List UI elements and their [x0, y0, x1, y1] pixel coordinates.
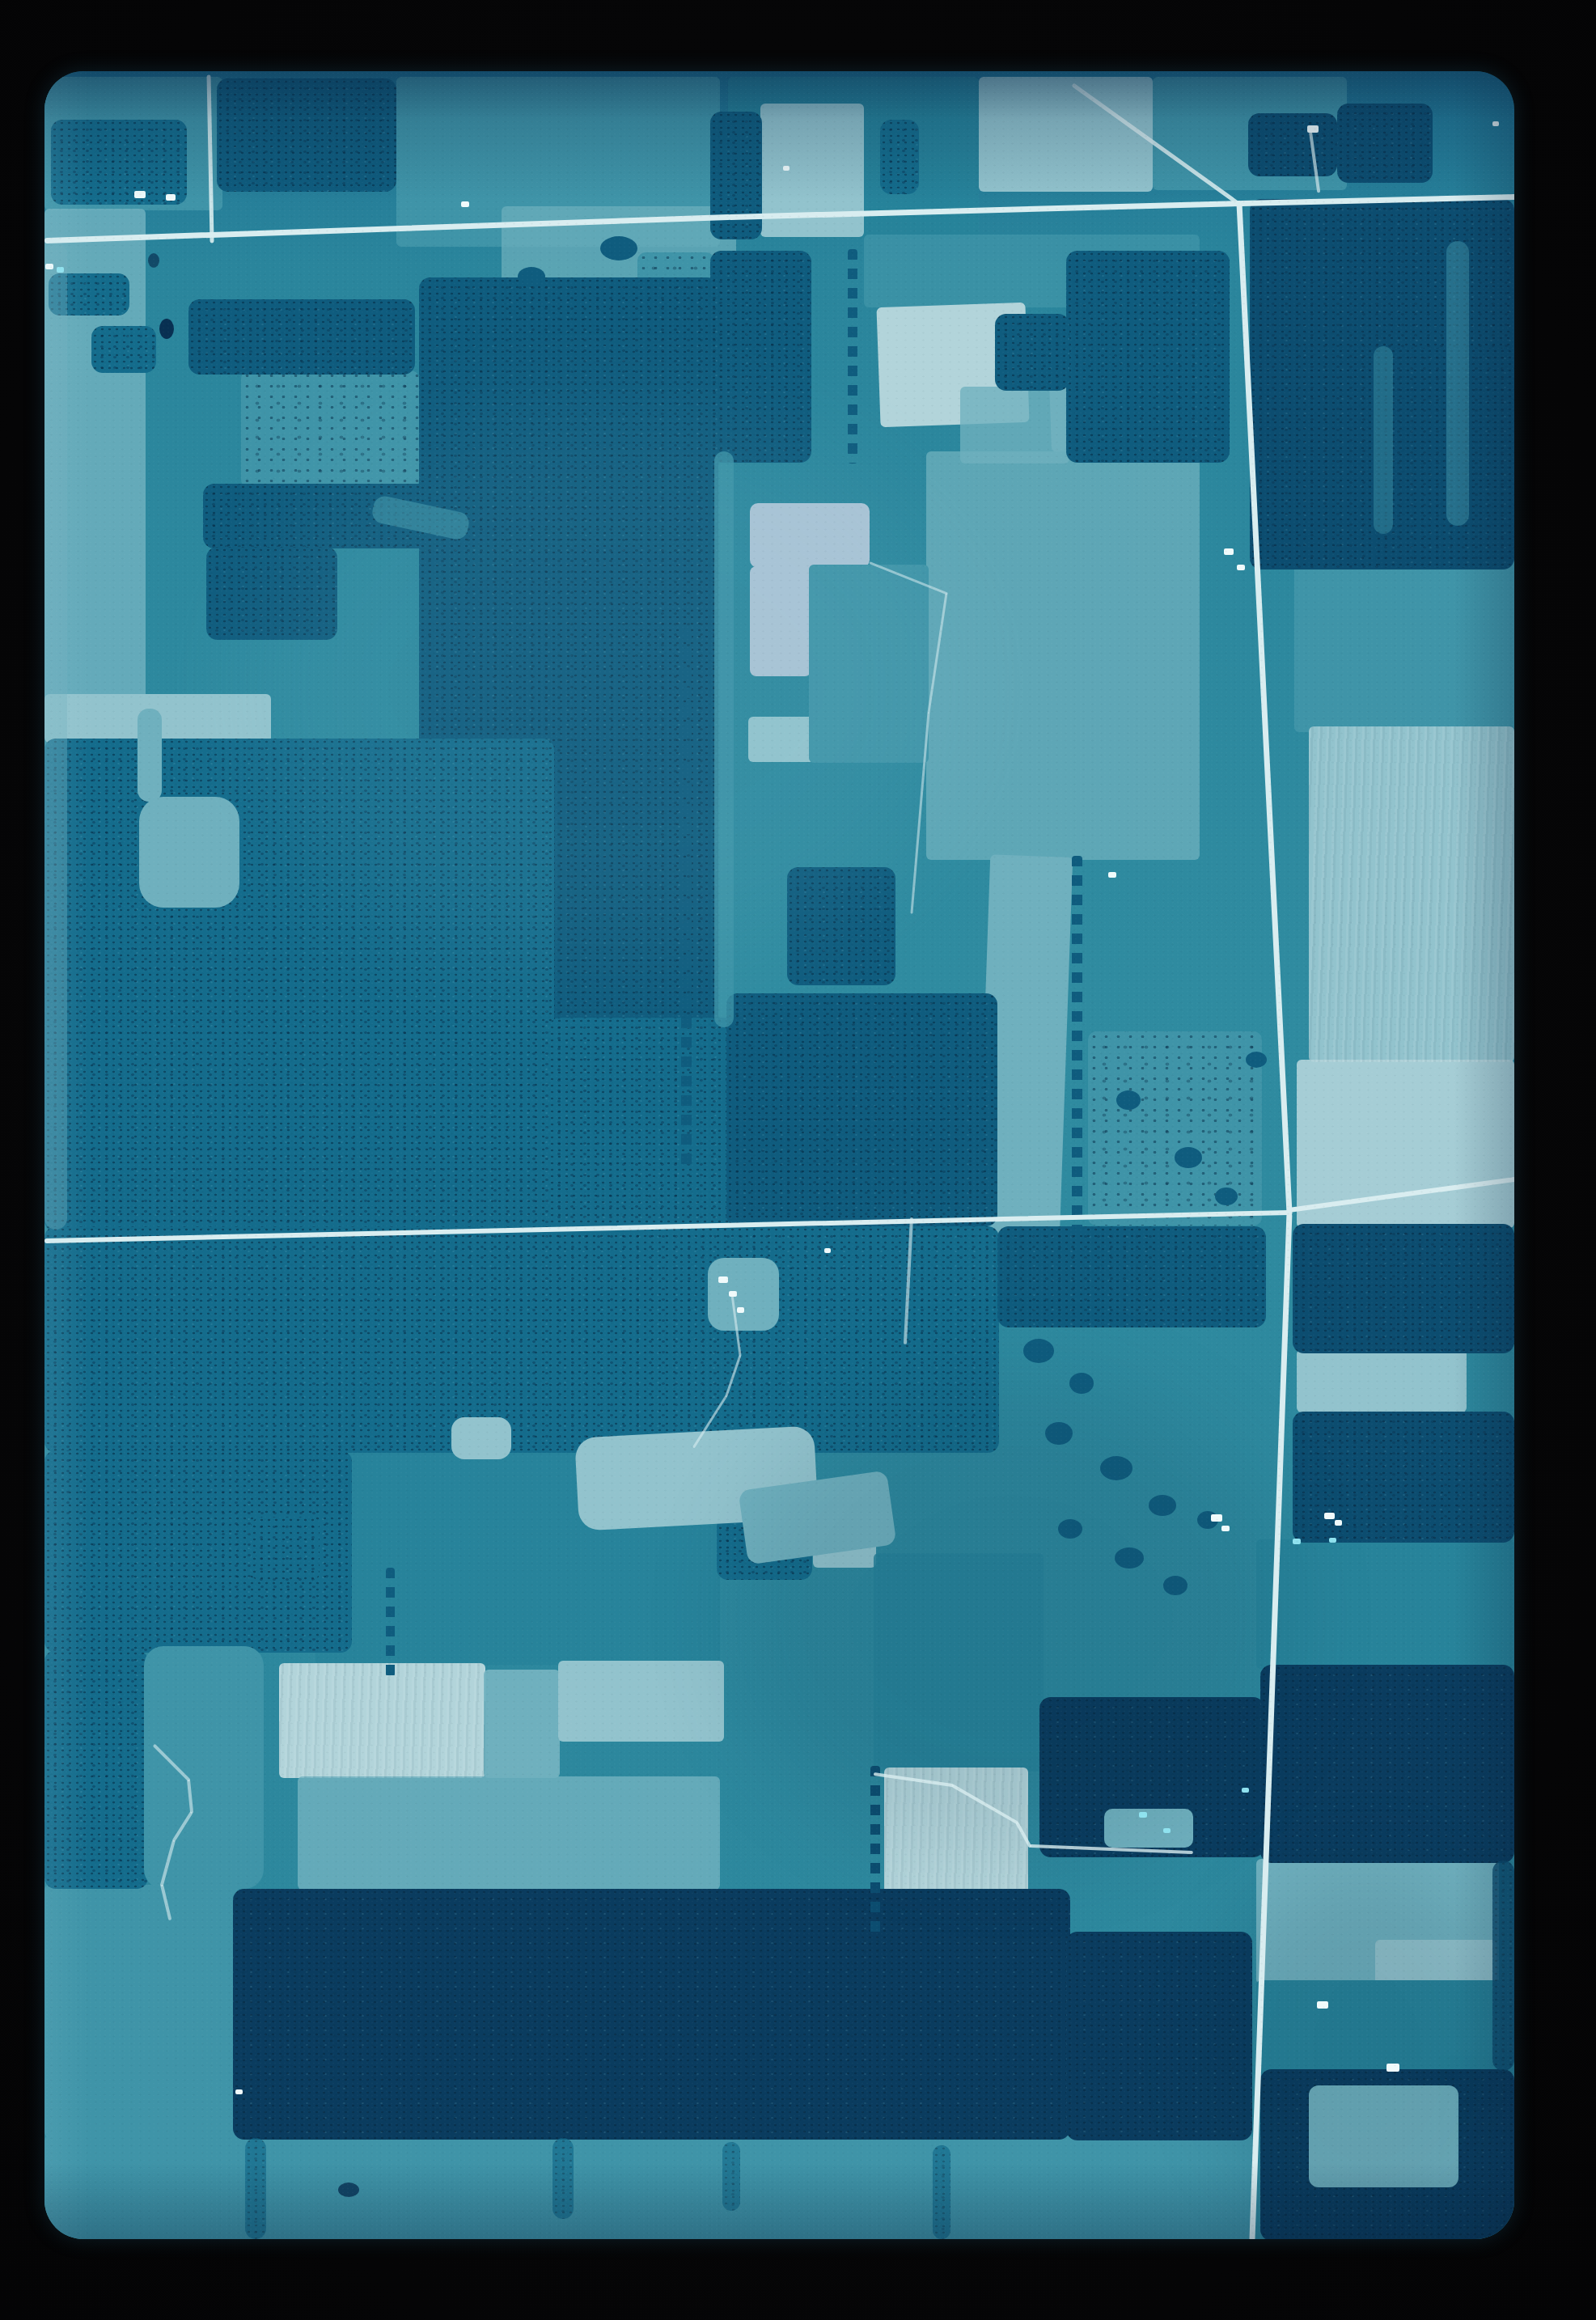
building-marker: [1324, 1513, 1335, 1519]
field-patch: [44, 2136, 1254, 2239]
building-marker: [45, 264, 53, 269]
building-marker: [57, 267, 64, 273]
building-marker: [1237, 565, 1245, 570]
forest-patch: [44, 1650, 148, 1889]
tree-clump: [600, 236, 637, 260]
forest-patch: [722, 2142, 740, 2211]
clearing-patch: [1446, 241, 1469, 526]
building-marker: [824, 1248, 831, 1253]
forest-patch: [995, 314, 1069, 391]
forest-patch: [1260, 1665, 1514, 1863]
building-marker: [1307, 125, 1319, 133]
tree-clump: [1116, 1090, 1141, 1110]
field-patch: [44, 1885, 239, 2137]
building-marker: [1386, 2064, 1399, 2072]
pond: [148, 253, 159, 268]
building-marker: [1293, 1539, 1301, 1544]
pond: [159, 319, 174, 339]
forest-patch: [997, 1226, 1266, 1327]
clearing-patch: [708, 1258, 779, 1331]
building-marker: [1329, 1538, 1336, 1543]
field-patch: [1256, 1539, 1514, 1669]
tree-clump: [1215, 1188, 1238, 1205]
field-patch: [298, 1776, 720, 1890]
building-marker: [1224, 548, 1234, 555]
tree-clump: [1023, 1339, 1054, 1363]
clearing-patch: [1374, 346, 1393, 534]
hedgerow: [386, 1568, 395, 1677]
building-marker: [729, 1291, 737, 1297]
film-tone: [728, 1375, 1294, 1861]
tree-clump: [1175, 1147, 1202, 1168]
building-marker: [737, 1307, 744, 1313]
clearing-patch: [451, 1417, 511, 1459]
forest-patch: [1293, 1412, 1514, 1543]
building-marker: [166, 194, 176, 201]
field-streaks: [1309, 726, 1514, 1062]
forest-patch: [251, 1517, 320, 1581]
forest-patch: [933, 2145, 950, 2239]
forest-patch: [548, 1018, 734, 1230]
hedgerow: [1072, 856, 1082, 1240]
forest-patch: [1337, 104, 1433, 183]
forest-patch: [217, 78, 396, 192]
building-marker: [1221, 1526, 1230, 1531]
field-patch: [558, 1661, 724, 1742]
field-patch: [979, 77, 1153, 192]
building-marker: [1335, 1520, 1342, 1526]
forest-patch: [1248, 113, 1337, 176]
pond: [338, 2182, 359, 2197]
tree-clump: [1246, 1052, 1267, 1068]
film-tone: [243, 404, 971, 971]
building-marker: [1163, 1828, 1171, 1833]
building-marker: [1317, 2001, 1328, 2009]
building-marker: [1139, 1812, 1147, 1818]
clearing-patch: [139, 797, 239, 908]
building-marker: [783, 166, 790, 171]
forest-patch: [1293, 1224, 1514, 1353]
building-marker: [461, 201, 469, 207]
field-patch: [484, 1670, 560, 1778]
clearing-patch: [138, 709, 162, 802]
forest-patch: [726, 993, 997, 1226]
forest-patch: [245, 2138, 266, 2239]
forest-patch: [91, 326, 156, 373]
field-streaks: [279, 1663, 485, 1778]
forest-patch: [51, 120, 187, 205]
tree-clump: [518, 267, 545, 286]
forest-patch: [880, 120, 919, 194]
forest-patch: [1066, 251, 1230, 463]
building-marker: [718, 1276, 728, 1283]
forest-patch: [188, 299, 415, 375]
building-marker: [134, 191, 146, 198]
clearing-patch: [44, 243, 67, 1230]
aerial-photo: [44, 71, 1514, 2239]
hedgerow: [848, 249, 857, 464]
forest-patch: [233, 1889, 1070, 2140]
building-marker: [1108, 872, 1116, 878]
building-marker: [1211, 1514, 1222, 1522]
building-marker: [235, 2089, 243, 2094]
forest-patch: [1375, 348, 1514, 568]
clearing-patch: [144, 1646, 264, 1889]
building-marker: [1242, 1788, 1249, 1793]
slide-mount: [0, 0, 1596, 2320]
forest-patch: [552, 2138, 574, 2219]
building-marker: [1492, 121, 1499, 126]
field-patch: [1297, 1349, 1467, 1412]
